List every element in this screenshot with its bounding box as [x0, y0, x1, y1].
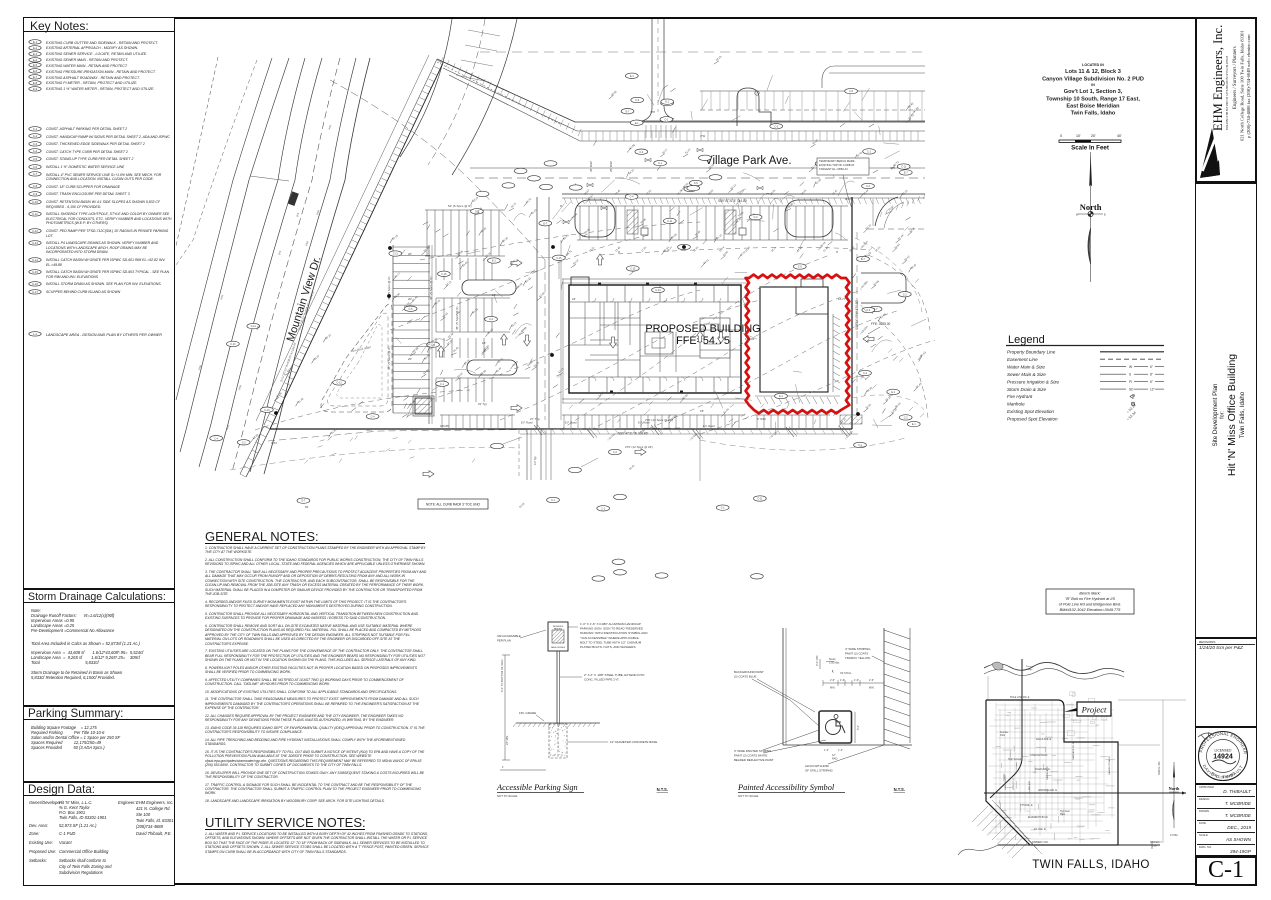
svg-text:50.16: 50.16	[324, 333, 332, 341]
svg-text:C-2: C-2	[866, 185, 871, 188]
svg-text:FFE: 3655.00: FFE: 3655.00	[871, 322, 891, 326]
svg-text:PROPOSED BUILDING: PROPOSED BUILDING	[645, 323, 760, 335]
svg-text:51.33: 51.33	[442, 312, 449, 319]
svg-text:54.45: 54.45	[866, 385, 874, 393]
svg-text:54.70: 54.70	[525, 197, 532, 204]
svg-text:E-1: E-1	[891, 391, 895, 394]
svg-text:18': 18'	[700, 409, 704, 413]
svg-text:C-1: C-1	[440, 383, 445, 386]
svg-text:52.23: 52.23	[715, 54, 723, 62]
svg-text:14924: 14924	[1213, 754, 1233, 761]
svg-text:E.F. Road: E.F. Road	[521, 421, 533, 425]
svg-text:E-1: E-1	[635, 122, 639, 125]
svg-text:50.80: 50.80	[252, 432, 260, 440]
svg-text:50.52: 50.52	[457, 372, 464, 379]
svg-text:PARKING: PARKING	[554, 627, 563, 630]
svg-text:1'-6": 1'-6"	[840, 679, 845, 682]
svg-text:20': 20'	[408, 357, 412, 361]
svg-text:Legend: Legend	[1008, 334, 1045, 346]
svg-text:C-15: C-15	[556, 257, 562, 260]
svg-text:50.72: 50.72	[865, 223, 873, 231]
svg-text:W: W	[1129, 365, 1132, 369]
svg-text:4"PI: 4"PI	[327, 124, 332, 130]
svg-text:276' (12 Spcs @ 23'): 276' (12 Spcs @ 23')	[625, 445, 653, 449]
svg-text:52.65: 52.65	[879, 312, 887, 320]
svg-text:VAN ACCESSIBLE: VAN ACCESSIBLE	[551, 646, 566, 649]
svg-text:Scale In Feet: Scale In Feet	[1071, 145, 1109, 152]
svg-text:8": 8"	[1150, 373, 1153, 377]
svg-text:S89°47'31"E 744.80': S89°47'31"E 744.80'	[718, 199, 748, 203]
svg-text:Perrine: Perrine	[1026, 665, 1034, 668]
svg-text:Canyon Village Subdivision No.: Canyon Village Subdivision No. 2 PUD	[1042, 77, 1144, 83]
svg-text:51.23: 51.23	[471, 307, 479, 315]
svg-text:North: North	[1169, 786, 1180, 791]
svg-text:C-4: C-4	[866, 309, 871, 312]
svg-text:53.85: 53.85	[872, 279, 880, 287]
svg-text:1'-3": 1'-3"	[824, 749, 829, 752]
svg-text:TEMPORARY BENCH MARK -: TEMPORARY BENCH MARK -	[819, 159, 856, 163]
svg-text:Gov't Lot 1, Section 3,: Gov't Lot 1, Section 3,	[1064, 89, 1123, 95]
svg-text:52.38: 52.38	[694, 230, 701, 237]
svg-text:51.14: 51.14	[715, 233, 723, 241]
svg-text:BOLT TO STEEL TUBE WITH 1/2": BOLT TO STEEL TUBE WITH 1/2" CADMIUM	[580, 640, 642, 644]
svg-text:51.63: 51.63	[919, 350, 927, 358]
svg-text:54.18: 54.18	[901, 188, 909, 196]
svg-text:3300 E. RD.: 3300 E. RD.	[1157, 761, 1161, 775]
svg-text:CONC. FILLED PIPE 2'-0".: CONC. FILLED PIPE 2'-0".	[584, 678, 620, 682]
svg-text:SD: SD	[1129, 387, 1134, 391]
svg-text:50.55: 50.55	[722, 250, 729, 257]
svg-text:PAINT (2) COATS: PAINT (2) COATS	[845, 652, 868, 656]
svg-text:54.74: 54.74	[562, 233, 570, 241]
svg-text:2'-6": 2'-6"	[869, 679, 874, 682]
svg-text:1': 1'	[502, 765, 504, 769]
svg-text:29.31: 29.31	[589, 246, 596, 253]
svg-text:(2) COATS BLUE: (2) COATS BLUE	[734, 675, 757, 679]
svg-text:27.93: 27.93	[641, 246, 648, 253]
svg-text:Painted Accessibility Symbol: Painted Accessibility Symbol	[737, 783, 835, 792]
svg-text:53.12: 53.12	[572, 258, 580, 266]
svg-text:LOCUST ST.: LOCUST ST.	[1013, 777, 1015, 790]
svg-text:Park: Park	[1060, 813, 1066, 816]
svg-text:C-4: C-4	[214, 437, 219, 440]
svg-text:22.93: 22.93	[693, 246, 700, 253]
svg-text:52.96: 52.96	[519, 502, 526, 509]
svg-text:C-13: C-13	[230, 343, 236, 346]
svg-text:Twin Falls, Idaho: Twin Falls, Idaho	[1239, 391, 1246, 438]
svg-text:4"PI: 4"PI	[219, 294, 224, 300]
svg-text:1:50 Max.: 1:50 Max.	[829, 662, 840, 665]
svg-text:50.87: 50.87	[584, 189, 591, 196]
svg-text:8"S: 8"S	[295, 212, 300, 217]
svg-text:4"W: 4"W	[700, 134, 706, 138]
svg-text:53.25: 53.25	[456, 249, 464, 257]
svg-text:54.43: 54.43	[411, 295, 419, 303]
svg-text:52.37: 52.37	[739, 189, 746, 196]
svg-text:C-2: C-2	[754, 216, 759, 219]
svg-text:50.20: 50.20	[501, 236, 509, 244]
svg-text:10': 10'	[1076, 134, 1081, 138]
svg-text:C-13: C-13	[264, 409, 270, 412]
svg-text:LICENSED: LICENSED	[1215, 749, 1233, 753]
svg-text:Engineers / Surveyors / Planne: Engineers / Surveyors / Planners	[1233, 46, 1238, 109]
svg-text:N.T.S.: N.T.S.	[657, 787, 668, 792]
svg-text:CAROLLARD: CAROLLARD	[1046, 766, 1049, 780]
svg-text:FIN. GRADE: FIN. GRADE	[519, 711, 536, 715]
svg-text:51.48: 51.48	[297, 396, 305, 404]
svg-text:54' (6 Spcs @ 9'): 54' (6 Spcs @ 9')	[448, 204, 472, 208]
svg-text:for:: for:	[1220, 411, 1226, 419]
svg-text:16.77': 16.77'	[838, 297, 847, 301]
svg-text:52.81: 52.81	[646, 189, 653, 196]
svg-text:Lots 11 & 12, Block 3: Lots 11 & 12, Block 3	[1065, 69, 1121, 75]
svg-text:North: North	[1080, 202, 1102, 212]
svg-text:52.46: 52.46	[275, 391, 283, 399]
svg-text:51.71: 51.71	[510, 202, 517, 209]
svg-text:E-7: E-7	[626, 110, 630, 113]
svg-text:C-2: C-2	[903, 293, 908, 296]
svg-text:C-5: C-5	[409, 308, 414, 311]
svg-text:PLATED BOLTS, NUTS, AND WASHER: PLATED BOLTS, NUTS, AND WASHERS.	[580, 645, 636, 649]
svg-text:3'-0": 3'-0"	[857, 725, 860, 730]
svg-text:53.45: 53.45	[615, 189, 622, 196]
svg-text:53.85: 53.85	[738, 211, 745, 218]
svg-text:20': 20'	[408, 297, 412, 301]
svg-text:45° (5 Spcs @ 9'): 45° (5 Spcs @ 9')	[387, 347, 391, 371]
svg-text:51.64: 51.64	[722, 407, 730, 415]
svg-text:PI: PI	[1129, 380, 1132, 384]
svg-text:℄: ℄	[831, 669, 834, 673]
svg-text:PARKING" WITH IDENTIFICATION S: PARKING" WITH IDENTIFICATION SYMBOL AND	[580, 631, 648, 635]
svg-text:Property Boundary Line: Property Boundary Line	[1007, 350, 1056, 355]
svg-text:POLE LINE RD. E: POLE LINE RD. E	[1010, 696, 1030, 699]
svg-text:FALLS AVE. E: FALLS AVE. E	[1036, 738, 1052, 741]
svg-text:ADDISON AVE. E: ADDISON AVE. E	[1038, 789, 1057, 792]
svg-text:4" WIDE STRIPING: 4" WIDE STRIPING	[845, 647, 871, 651]
svg-text:E-1: E-1	[779, 395, 783, 398]
svg-text:C-13: C-13	[655, 289, 661, 292]
svg-text:28.71: 28.71	[771, 246, 778, 253]
svg-text:52.40: 52.40	[856, 151, 863, 158]
svg-text:20': 20'	[408, 252, 412, 256]
svg-text:Project: Project	[1081, 705, 1107, 715]
svg-text:Bridge: Bridge	[1026, 668, 1033, 671]
svg-text:50.99: 50.99	[517, 282, 524, 289]
svg-text:50.56: 50.56	[770, 189, 777, 196]
svg-text:54.27: 54.27	[662, 148, 669, 155]
svg-text:EHM Engineers, Inc.: EHM Engineers, Inc.	[1211, 25, 1225, 131]
svg-text:53.77: 53.77	[394, 272, 401, 279]
svg-text:53.12: 53.12	[729, 183, 737, 191]
svg-text:2ND AVE: 2ND AVE	[1028, 780, 1031, 790]
svg-text:52.15: 52.15	[391, 233, 399, 241]
svg-text:54.27: 54.27	[313, 354, 321, 362]
svg-text:Mountain View Dr.: Mountain View Dr.	[285, 255, 324, 343]
svg-text:C-4: C-4	[613, 451, 618, 454]
svg-text:45° (5 Spcs @ 9'): 45° (5 Spcs @ 9')	[455, 307, 459, 331]
svg-text:E-7: E-7	[302, 500, 306, 503]
svg-text:3 MI.: 3 MI.	[1152, 845, 1158, 848]
svg-text:50.50: 50.50	[708, 189, 715, 196]
svg-text:NOT TO SCALE: NOT TO SCALE	[738, 794, 758, 798]
svg-text:MIN.: MIN.	[830, 687, 836, 690]
svg-text:PER PLAN: PER PLAN	[497, 639, 511, 643]
svg-text:C-4: C-4	[630, 196, 635, 199]
svg-text:5'-0" TO BOTTOM OF SIGN: 5'-0" TO BOTTOM OF SIGN	[500, 659, 504, 692]
svg-text:VAN ACCESSIBLE: VAN ACCESSIBLE	[497, 634, 521, 638]
svg-text:EXISTING TOP OF CURB AT: EXISTING TOP OF CURB AT	[819, 163, 855, 167]
svg-text:53.44: 53.44	[495, 366, 502, 373]
svg-text:54.84: 54.84	[894, 243, 901, 250]
svg-text:E: E	[1104, 213, 1106, 217]
svg-text:51.25: 51.25	[677, 189, 684, 196]
svg-text:52.67: 52.67	[587, 194, 594, 201]
svg-text:45° (5 Spcs @ 9'): 45° (5 Spcs @ 9')	[429, 277, 433, 301]
svg-text:S: S	[1129, 373, 1131, 377]
svg-text:0: 0	[1060, 134, 1062, 138]
svg-text:+ 53.92m: + 53.92m	[859, 325, 869, 336]
svg-text:RAD.: RAD.	[832, 758, 838, 761]
svg-text:Pressure Irrigation & Size: Pressure Irrigation & Size	[1007, 379, 1060, 384]
svg-text:C-13: C-13	[337, 382, 343, 385]
svg-text:51.21: 51.21	[511, 321, 518, 328]
svg-text:Sewer Main & Size: Sewer Main & Size	[1007, 372, 1046, 377]
svg-text:6": 6"	[1150, 380, 1153, 384]
svg-text:TWIN FALLS, IDAHO: TWIN FALLS, IDAHO	[1032, 858, 1150, 871]
svg-text:TRAFFIC YELLOW.: TRAFFIC YELLOW.	[845, 656, 871, 660]
svg-text:+ 54.10m: + 54.10m	[844, 430, 854, 441]
svg-text:C-5: C-5	[849, 90, 854, 93]
svg-text:C-1: C-1	[658, 162, 663, 165]
svg-text:Water Main & Size: Water Main & Size	[1007, 364, 1045, 369]
svg-text:FY04b: FY04b	[1170, 833, 1178, 837]
svg-text:BM#4102-3042 Elevation=3649.7: BM#4102-3042 Elevation=3649.775	[1060, 608, 1122, 612]
svg-text:TANGENT EL.=3652.44: TANGENT EL.=3652.44	[819, 167, 848, 171]
svg-text:54.63: 54.63	[597, 390, 605, 398]
svg-text:50.47: 50.47	[910, 262, 918, 270]
svg-text:51.43: 51.43	[453, 346, 460, 353]
svg-text:2" X 2" X .188" STEEL TUBE, EX: 2" X 2" X .188" STEEL TUBE, EXTEND INTO	[584, 673, 645, 677]
svg-text:54.43: 54.43	[915, 381, 923, 389]
svg-text:51.44: 51.44	[412, 346, 420, 354]
svg-text:C-11: C-11	[393, 253, 399, 256]
svg-text:C-1: C-1	[551, 499, 556, 502]
svg-text:18': 18'	[482, 341, 486, 345]
svg-text:1'-0" X 1'-6" X 0.080" ALUMINU: 1'-0" X 1'-6" X 0.080" ALUMINUM HANDICAP	[580, 622, 641, 626]
svg-text:HARRISON ST.: HARRISON ST.	[1004, 774, 1007, 790]
svg-text:C-2: C-2	[639, 151, 644, 154]
svg-text:1'-6": 1'-6"	[854, 679, 859, 682]
svg-text:Hit 'N' Miss Office Building: Hit 'N' Miss Office Building	[1226, 354, 1238, 476]
svg-text:51.15: 51.15	[434, 298, 442, 306]
svg-text:50.26: 50.26	[446, 338, 454, 346]
svg-text:20': 20'	[1091, 134, 1096, 138]
svg-text:53.58: 53.58	[640, 218, 647, 225]
svg-text:STADIUM BLVD: STADIUM BLVD	[1030, 754, 1048, 757]
svg-text:52.71: 52.71	[497, 357, 504, 364]
svg-text:5TH AVE. E: 5TH AVE. E	[1020, 804, 1033, 807]
svg-text:51.69: 51.69	[486, 327, 494, 335]
svg-text:NOTE: ALL CURB RADII 3' TOC UN: NOTE: ALL CURB RADII 3' TOC UNO	[426, 503, 481, 507]
svg-text:High School: High School	[1008, 758, 1021, 761]
svg-text:40': 40'	[1117, 134, 1122, 138]
svg-text:14': 14'	[492, 293, 496, 297]
svg-text:Township 10 South, Range 17 Ea: Township 10 South, Range 17 East,	[1046, 97, 1140, 103]
svg-text:Accessible Parking Sign: Accessible Parking Sign	[496, 783, 578, 792]
svg-text:E-1: E-1	[912, 423, 916, 426]
svg-text:9': 9'	[618, 250, 621, 254]
svg-text:53.45: 53.45	[583, 227, 591, 235]
svg-text:ALIGN WITH END: ALIGN WITH END	[805, 764, 829, 768]
svg-text:Bench Mark:: Bench Mark:	[1079, 592, 1100, 596]
svg-text:53.41: 53.41	[702, 257, 710, 265]
svg-text:53.41: 53.41	[629, 464, 636, 471]
svg-text:27' Typ.: 27' Typ.	[530, 417, 541, 421]
svg-text:C-11: C-11	[901, 166, 907, 169]
svg-text:Site Development Plan: Site Development Plan	[1212, 383, 1219, 447]
svg-text:54.92: 54.92	[670, 413, 678, 421]
svg-text:52.48: 52.48	[815, 178, 822, 185]
svg-text:53.10: 53.10	[445, 279, 453, 287]
svg-text:ELIZABETH BLVD: ELIZABETH BLVD	[1028, 816, 1048, 819]
svg-text:LOCATED IN: LOCATED IN	[1082, 63, 1104, 67]
svg-text:C-15: C-15	[630, 268, 636, 271]
svg-text:621 North College Road, Suite: 621 North College Road, Suite 100 Twin F…	[1240, 30, 1246, 141]
svg-text:PARKING SIGN. SIGN TO READ "RE: PARKING SIGN. SIGN TO READ "RESERVED	[580, 627, 644, 631]
svg-text:52.33: 52.33	[524, 276, 532, 284]
svg-text:C-1: C-1	[601, 507, 606, 510]
svg-text:+ 54.08m: + 54.08m	[859, 280, 869, 291]
svg-text:51.75: 51.75	[558, 367, 565, 374]
svg-text:53.94: 53.94	[393, 291, 401, 299]
svg-text:Storm Drain & Size: Storm Drain & Size	[1007, 387, 1047, 392]
svg-text:C-15: C-15	[441, 273, 447, 276]
svg-text:54.74: 54.74	[565, 249, 573, 257]
svg-text:25' R/W: 25' R/W	[609, 161, 613, 172]
svg-text:54.59: 54.59	[670, 232, 678, 240]
svg-text:BEADED REFLECTIVE PAINT: BEADED REFLECTIVE PAINT	[734, 758, 774, 762]
svg-text:+ 52.71m: + 52.71m	[769, 430, 779, 439]
svg-text:"VAN ACCESSIBLE" WHERE APPLICA: "VAN ACCESSIBLE" WHERE APPLICABLE.	[580, 636, 640, 640]
svg-text:E-1: E-1	[630, 75, 634, 78]
svg-text:W: W	[1076, 213, 1079, 217]
svg-text:KIMBERLY RD.: KIMBERLY RD.	[1032, 841, 1049, 844]
svg-text:Existing Spot Elevation: Existing Spot Elevation	[1007, 409, 1054, 414]
svg-text:54.35: 54.35	[912, 106, 920, 114]
svg-text:52.75: 52.75	[909, 226, 917, 234]
svg-text:21.48: 21.48	[823, 246, 830, 253]
svg-text:N.T.S.: N.T.S.	[894, 787, 905, 792]
svg-text:PAINT (2) COATS WHITE: PAINT (2) COATS WHITE	[734, 754, 767, 758]
svg-text:4'-0" MIN: 4'-0" MIN	[816, 656, 819, 666]
svg-text:50.91: 50.91	[480, 226, 488, 234]
svg-text:50.43: 50.43	[907, 101, 915, 109]
svg-text:84': 84'	[305, 505, 309, 509]
svg-text:129.33': 129.33'	[745, 337, 755, 341]
svg-text:54.23: 54.23	[472, 196, 479, 203]
svg-text:C-2: C-2	[635, 99, 640, 102]
svg-text:OF STALL: OF STALL	[840, 672, 852, 675]
svg-text:Easement Line: Easement Line	[1007, 357, 1038, 362]
svg-text:C-2: C-2	[242, 441, 247, 444]
svg-text:50.90: 50.90	[610, 89, 618, 97]
svg-text:54.75: 54.75	[423, 353, 431, 361]
svg-text:C-5: C-5	[694, 182, 699, 185]
svg-text:p (208)-734-4888 fax (208)-73: p (208)-734-4888 fax (208)-734-6049 web:…	[1246, 34, 1251, 138]
svg-text:50.93: 50.93	[801, 189, 808, 196]
svg-text:12": 12"	[1150, 387, 1155, 391]
svg-text:52.89: 52.89	[628, 143, 636, 151]
svg-text:non-flood outlet: non-flood outlet	[351, 345, 371, 353]
svg-text:52.35: 52.35	[787, 202, 794, 209]
svg-text:9.0' Typ: 9.0' Typ	[534, 456, 537, 465]
svg-text:51.44: 51.44	[897, 233, 905, 241]
svg-text:8"S: 8"S	[277, 250, 282, 255]
svg-text:E-7: E-7	[904, 172, 908, 175]
svg-text:51.72: 51.72	[684, 147, 692, 155]
svg-text:BUILDING THE FUTURE ON A FOUND: BUILDING THE FUTURE ON A FOUNDATION OF E…	[1226, 55, 1229, 130]
svg-text:NOT TO SCALE: NOT TO SCALE	[497, 794, 517, 798]
svg-text:24" MIN.: 24" MIN.	[505, 735, 509, 745]
svg-text:BACKGROUND PAINT: BACKGROUND PAINT	[734, 670, 764, 674]
svg-text:51.38: 51.38	[448, 332, 455, 339]
svg-text:C-2: C-2	[863, 372, 868, 375]
svg-text:52.64: 52.64	[894, 401, 902, 409]
svg-text:Twin Falls, Idaho: Twin Falls, Idaho	[1071, 111, 1116, 117]
svg-text:Park: Park	[1000, 734, 1006, 737]
svg-text:C-2: C-2	[489, 318, 494, 321]
svg-text:5' S/W: 5' S/W	[757, 417, 766, 421]
svg-text:East Boise Meridian: East Boise Meridian	[1066, 104, 1120, 110]
svg-text:MIN.: MIN.	[869, 687, 875, 690]
svg-text:6"W: 6"W	[237, 384, 242, 390]
svg-text:E-7: E-7	[543, 222, 547, 225]
svg-text:Village Park Ave.: Village Park Ave.	[705, 155, 792, 167]
svg-text:50.74: 50.74	[907, 113, 915, 121]
svg-text:51.30: 51.30	[423, 245, 431, 253]
svg-text:25.97: 25.97	[745, 246, 752, 253]
svg-text:23' Typ: 23' Typ	[478, 402, 487, 406]
svg-text:1'-3": 1'-3"	[838, 749, 843, 752]
svg-text:3653: 3653	[366, 428, 372, 432]
svg-text:C-5: C-5	[774, 125, 779, 128]
svg-text:C-5: C-5	[798, 266, 803, 269]
svg-text:52.91: 52.91	[865, 402, 873, 410]
svg-text:C-1: C-1	[664, 118, 669, 121]
svg-text:54.19: 54.19	[628, 168, 635, 175]
svg-text:54.67: 54.67	[903, 254, 911, 262]
svg-text:C-1: C-1	[721, 507, 726, 510]
svg-text:3653: 3653	[271, 441, 277, 445]
svg-text:HANKINS ROAD N: HANKINS ROAD N	[1108, 756, 1111, 775]
svg-text:35' R/W: 35' R/W	[589, 161, 593, 172]
svg-text:E-7: E-7	[861, 258, 865, 261]
svg-text:R=25': R=25'	[845, 197, 853, 201]
svg-text:4"PI: 4"PI	[225, 424, 230, 430]
svg-text:54.95: 54.95	[571, 212, 579, 220]
svg-text:"B" Bolt on Fire Hydrant at I/: "B" Bolt on Fire Hydrant at I/S	[1065, 597, 1115, 601]
svg-text:C-2: C-2	[904, 417, 909, 420]
svg-text:9': 9'	[836, 250, 839, 254]
svg-text:Manhole: Manhole	[1007, 402, 1025, 407]
svg-text:OF STALL STRIPING: OF STALL STRIPING	[805, 769, 834, 773]
svg-text:2'-6": 2'-6"	[830, 679, 835, 682]
svg-text:Fire Hydrant: Fire Hydrant	[1007, 394, 1033, 399]
svg-text:+ 54.35m: + 54.35m	[859, 240, 869, 251]
svg-text:27.46: 27.46	[797, 246, 804, 253]
svg-text:CARRIAGE LN. N: CARRIAGE LN. N	[1072, 742, 1075, 760]
svg-text:C-11: C-11	[667, 220, 673, 223]
